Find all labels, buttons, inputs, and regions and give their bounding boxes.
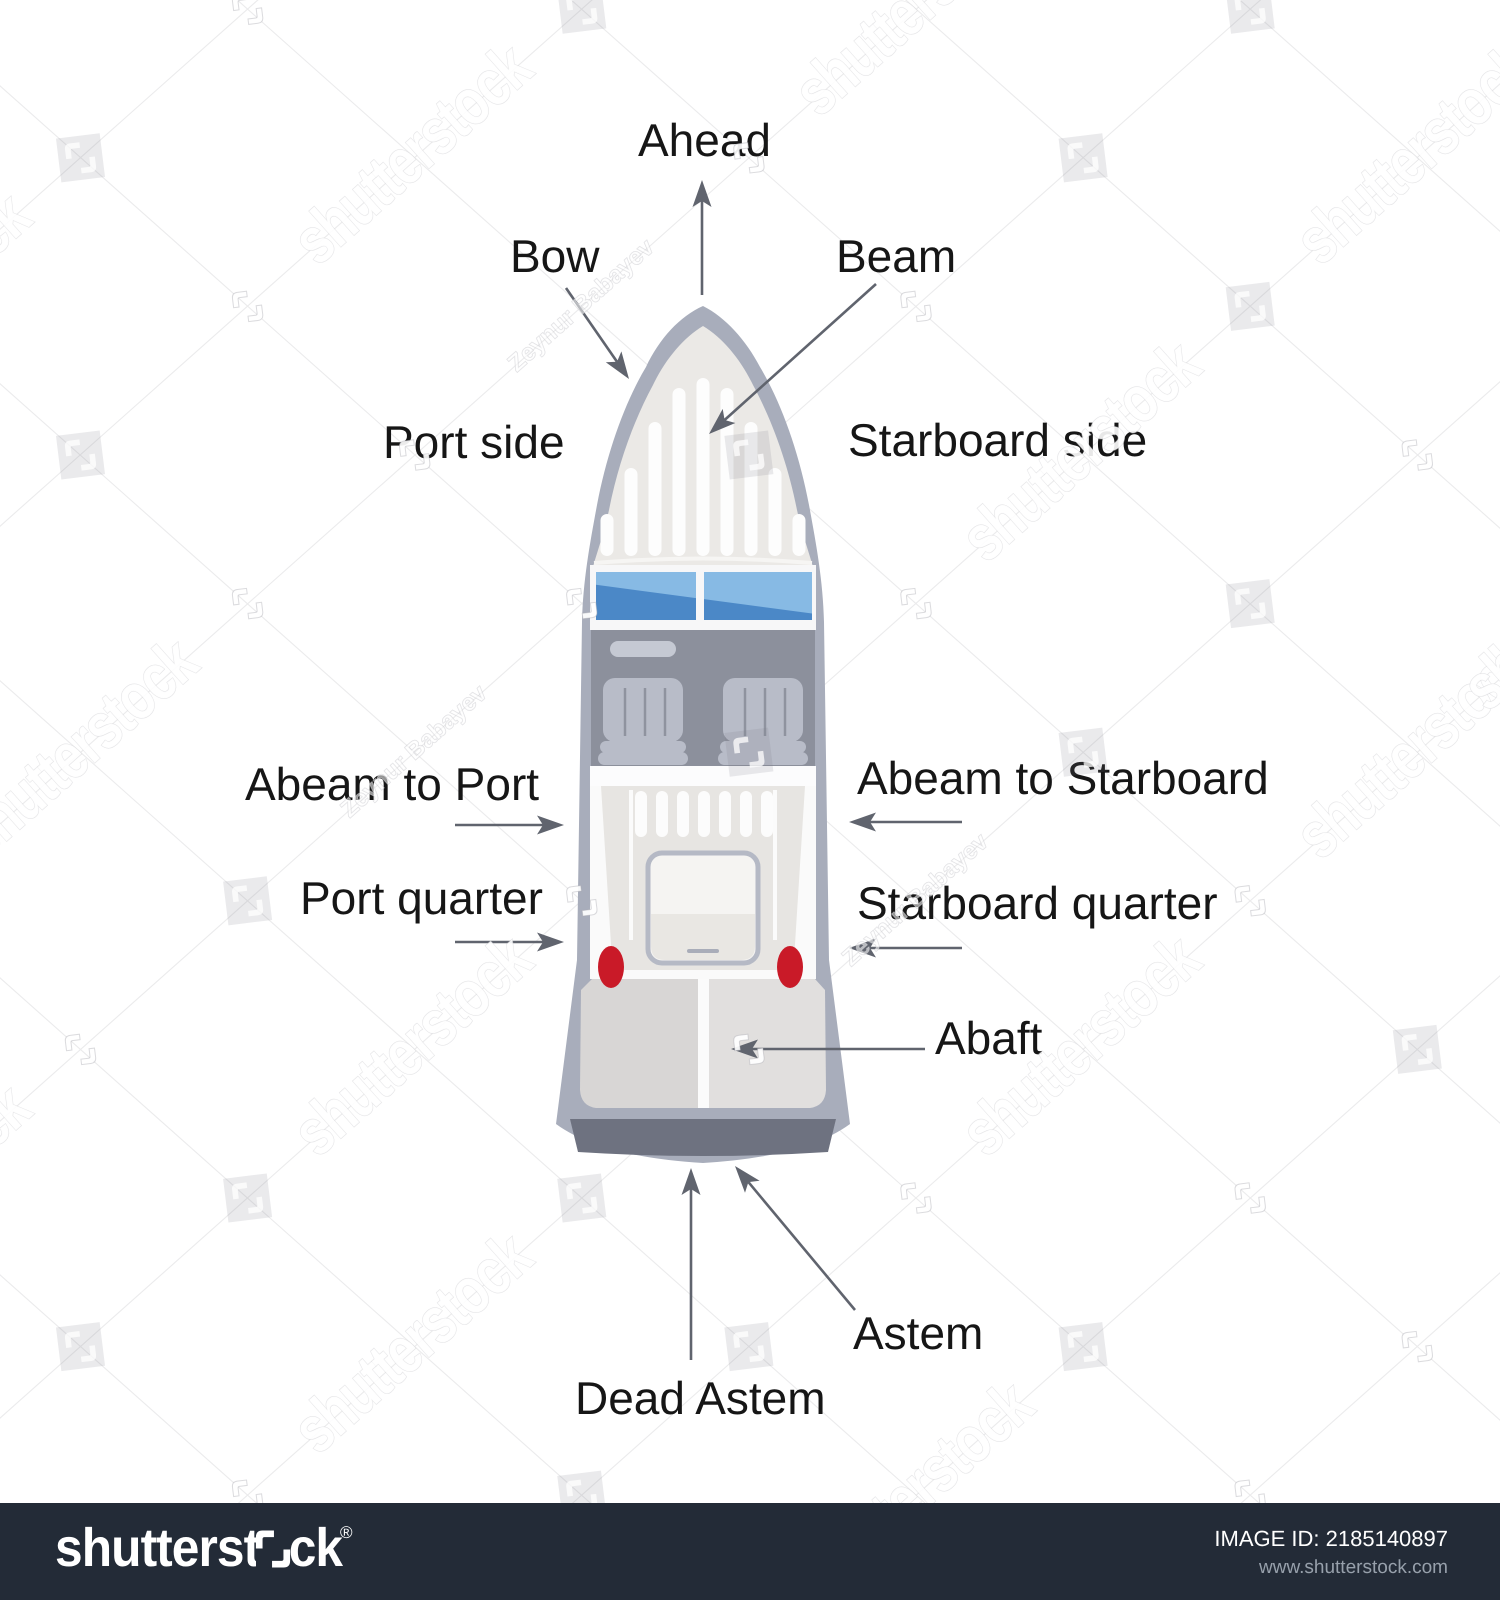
svg-text:IMAGE ID: 2185140897: IMAGE ID: 2185140897 [1214, 1526, 1448, 1551]
svg-text:®: ® [340, 1523, 353, 1542]
svg-text:www.shutterstock.com: www.shutterstock.com [1258, 1557, 1448, 1578]
svg-text:Ahead: Ahead [638, 114, 771, 166]
svg-text:Beam: Beam [836, 230, 956, 282]
svg-text:Bow: Bow [510, 230, 600, 282]
svg-text:Dead Astem: Dead Astem [575, 1372, 826, 1424]
svg-text:shutterstock: shutterstock [55, 1518, 344, 1578]
svg-text:Port quarter: Port quarter [300, 872, 543, 924]
svg-text:Astem: Astem [853, 1307, 983, 1359]
